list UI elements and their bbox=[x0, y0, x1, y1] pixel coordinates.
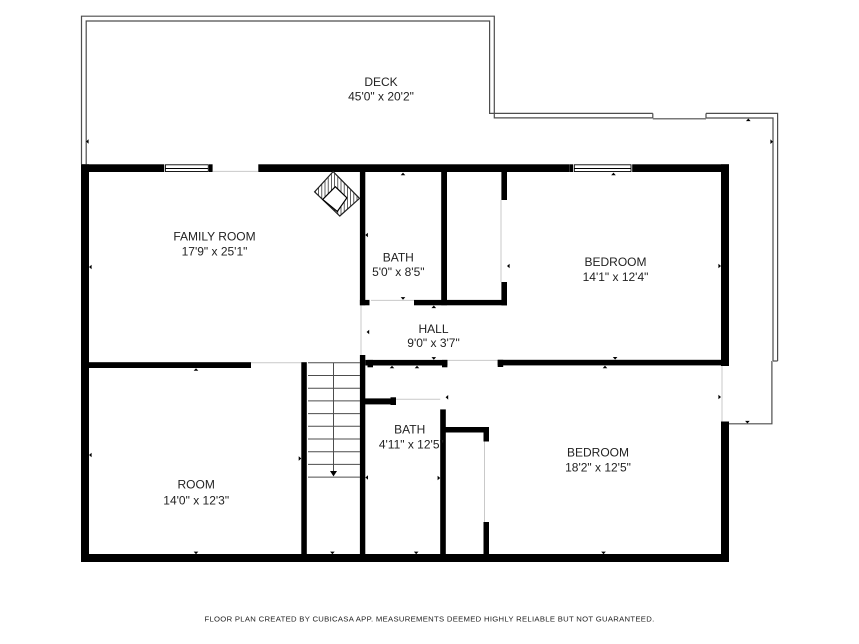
svg-text:BATH: BATH bbox=[383, 251, 414, 265]
svg-text:5'0" x 8'5": 5'0" x 8'5" bbox=[372, 265, 424, 279]
svg-text:14'1" x 12'4": 14'1" x 12'4" bbox=[583, 270, 649, 284]
svg-text:4'11" x 12'5": 4'11" x 12'5" bbox=[379, 438, 444, 452]
svg-text:FLOOR PLAN CREATED BY CUBICASA: FLOOR PLAN CREATED BY CUBICASA APP. MEAS… bbox=[204, 615, 654, 624]
svg-text:14'0" x 12'3": 14'0" x 12'3" bbox=[163, 494, 229, 508]
svg-text:9'0" x 3'7": 9'0" x 3'7" bbox=[407, 336, 459, 350]
svg-text:ROOM: ROOM bbox=[178, 478, 215, 492]
svg-text:18'2" x 12'5": 18'2" x 12'5" bbox=[565, 461, 631, 475]
svg-text:45'0" x 20'2": 45'0" x 20'2" bbox=[348, 90, 414, 104]
svg-text:BEDROOM: BEDROOM bbox=[584, 255, 646, 269]
svg-text:17'9" x 25'1": 17'9" x 25'1" bbox=[182, 245, 248, 259]
svg-text:BATH: BATH bbox=[394, 423, 425, 437]
svg-text:BEDROOM: BEDROOM bbox=[567, 446, 629, 460]
svg-text:DECK: DECK bbox=[364, 75, 397, 89]
svg-text:HALL: HALL bbox=[418, 322, 448, 336]
svg-text:FAMILY ROOM: FAMILY ROOM bbox=[173, 230, 255, 244]
